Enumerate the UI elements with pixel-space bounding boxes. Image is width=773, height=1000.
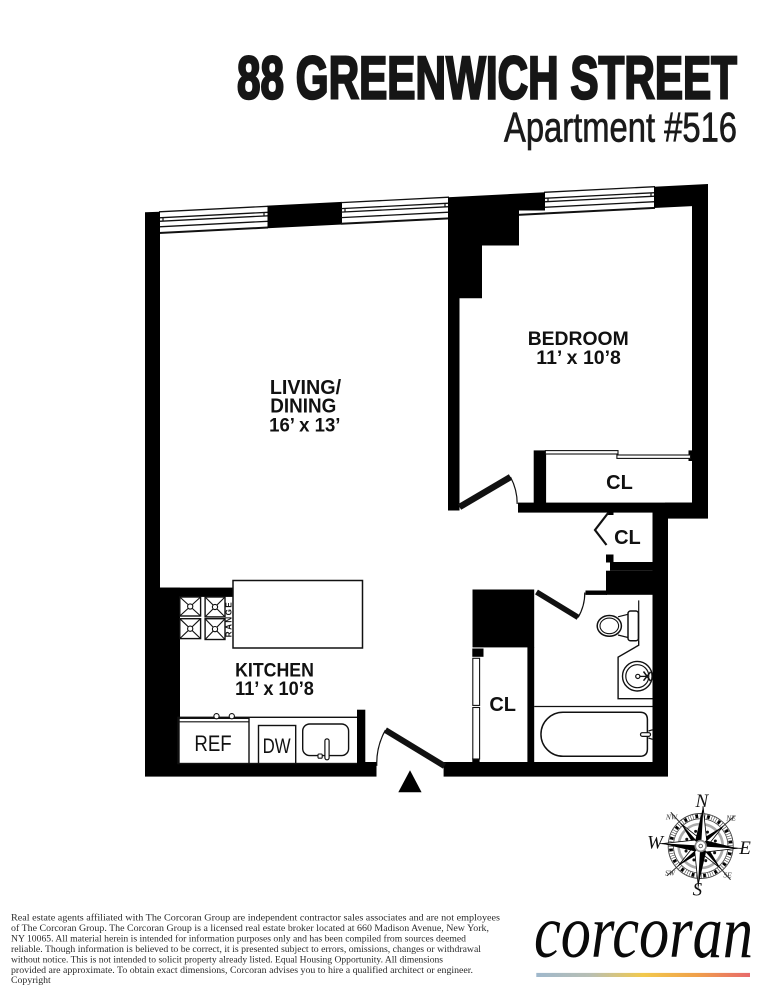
svg-text:Copyright: Copyright	[11, 975, 51, 986]
svg-text:NY 10065. All material herein: NY 10065. All material herein is intende…	[11, 933, 466, 944]
svg-text:88 GREENWICH STREET: 88 GREENWICH STREET	[237, 45, 737, 112]
svg-text:CL: CL	[489, 694, 516, 716]
svg-text:NE: NE	[725, 814, 736, 823]
svg-text:DINING: DINING	[270, 395, 336, 417]
svg-text:NW: NW	[665, 812, 678, 821]
svg-text:N: N	[694, 791, 709, 812]
svg-text:without notice. This is not in: without notice. This is not intended to …	[11, 954, 443, 965]
svg-text:provided are approximate. To o: provided are approximate. To obtain exac…	[11, 965, 473, 976]
svg-text:E: E	[738, 838, 751, 859]
svg-text:CL: CL	[614, 527, 641, 549]
svg-text:SE: SE	[723, 871, 732, 880]
svg-text:16’ x 13’: 16’ x 13’	[269, 415, 340, 436]
svg-text:of The Corcoran Group. The Cor: of The Corcoran Group. The Corcoran Grou…	[11, 923, 489, 934]
svg-text:11’ x 10’8: 11’ x 10’8	[235, 679, 314, 700]
svg-text:CL: CL	[606, 472, 633, 494]
svg-text:Apartment #516: Apartment #516	[504, 104, 737, 151]
svg-text:RANGE: RANGE	[225, 601, 234, 637]
svg-text:11’ x 10’8: 11’ x 10’8	[536, 348, 621, 369]
svg-text:W: W	[647, 833, 665, 854]
svg-text:Real estate agents affiliated: Real estate agents affiliated with The C…	[11, 913, 500, 924]
svg-text:reliable. Though information i: reliable. Though information is believed…	[11, 944, 481, 955]
svg-text:SW: SW	[665, 868, 676, 877]
svg-text:DW: DW	[263, 734, 292, 758]
svg-text:corcoran: corcoran	[534, 891, 753, 974]
svg-text:REF: REF	[194, 731, 231, 756]
